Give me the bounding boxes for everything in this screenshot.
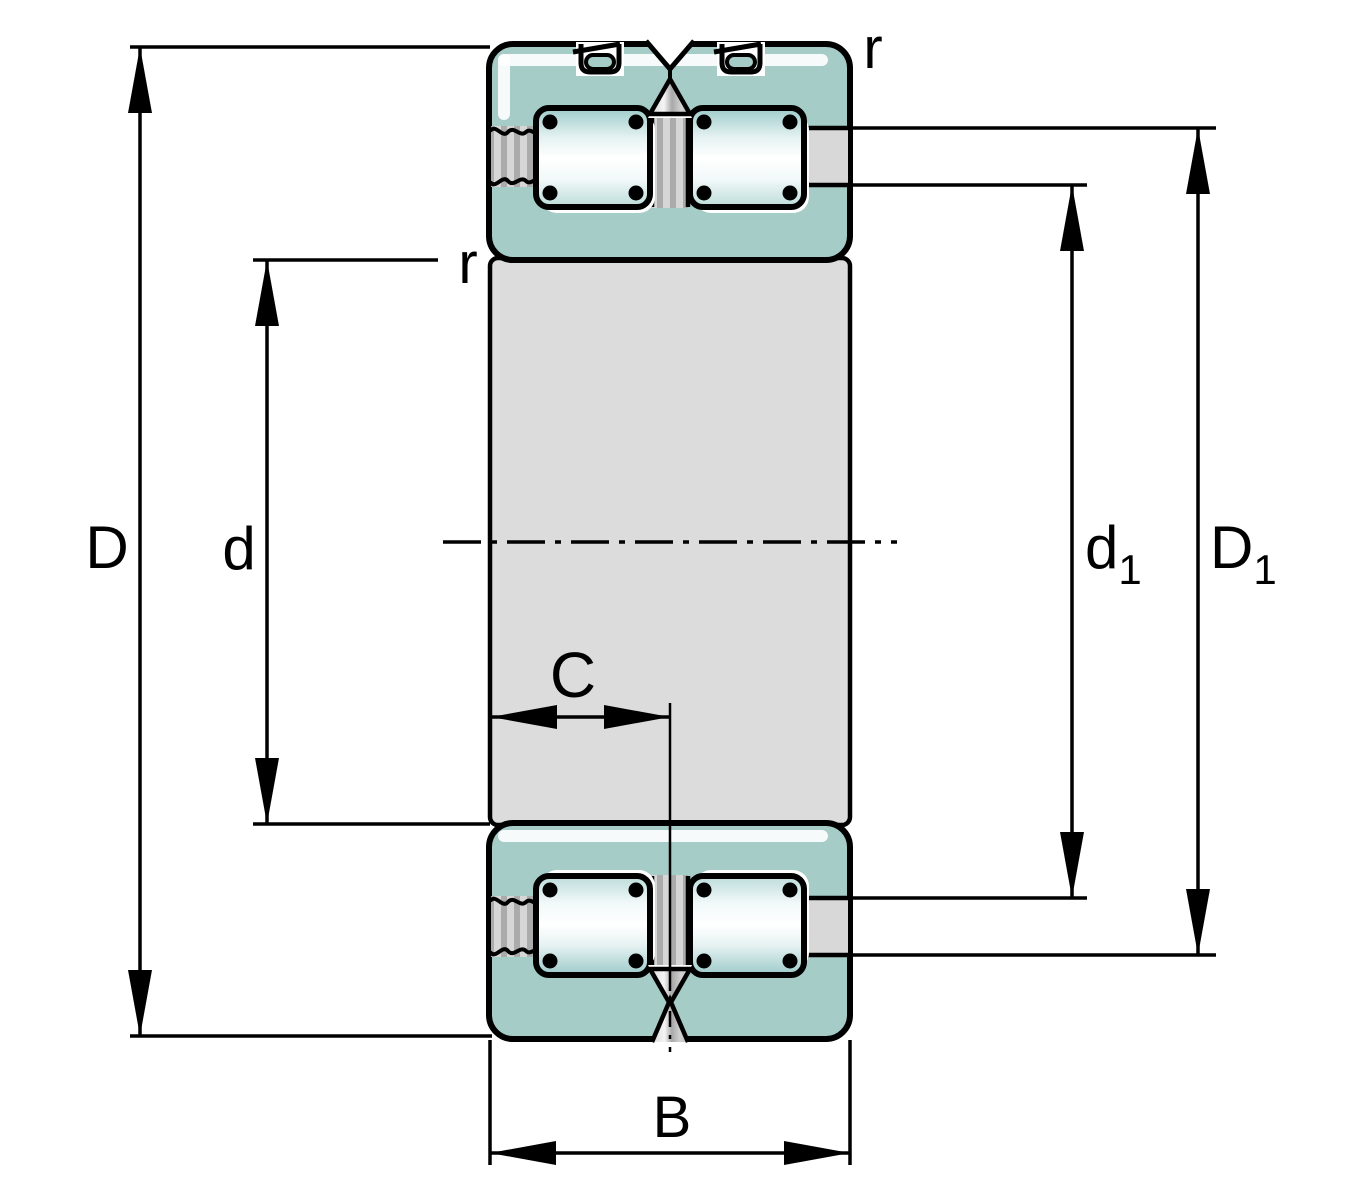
dimension-D: D [85,47,492,1036]
snap-ring-groove [714,42,765,76]
label-D1: D1 [1210,514,1277,593]
ring-highlight [498,830,828,842]
outer-ring-top-section [489,41,850,260]
label-d1: d1 [1085,514,1142,593]
label-r-inner: r [458,231,477,296]
dimension-D1: D1 [850,128,1277,955]
dimension-B: B [490,1040,850,1165]
label-D: D [85,514,128,581]
bearing-dimension-drawing: D d r r d1 D1 C B [0,0,1350,1200]
bearing-cross-section-diagram: D d r r d1 D1 C B [0,0,1350,1200]
label-d: d [222,515,255,582]
label-B: B [653,1085,692,1150]
label-C: C [550,639,596,711]
label-r-outer: r [863,16,882,81]
snap-ring-groove [573,42,624,76]
